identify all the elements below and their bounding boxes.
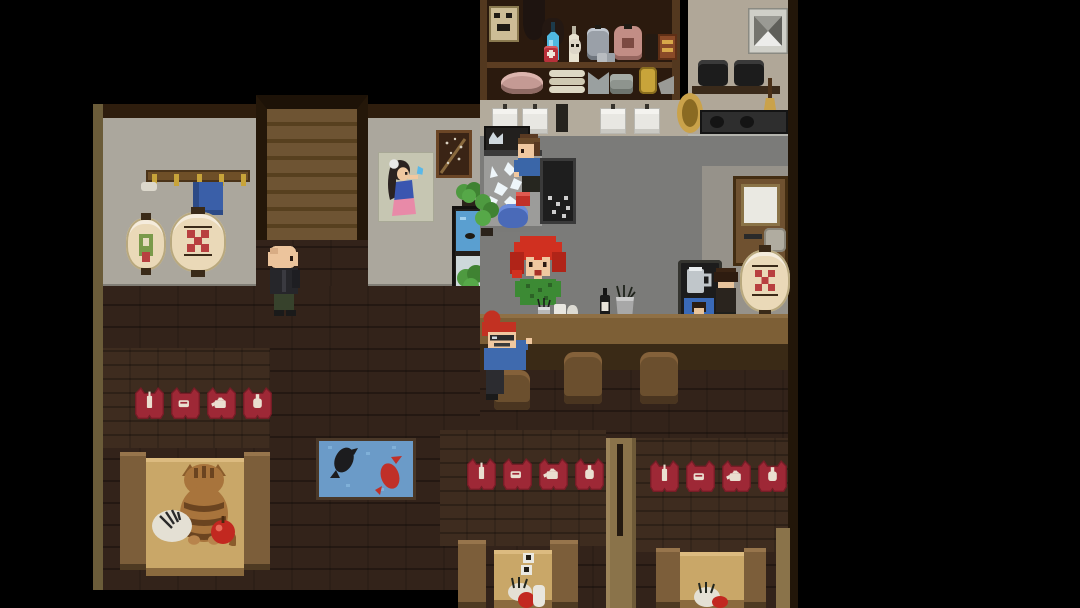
banner-cup (170, 386, 201, 423)
koi-rug (316, 438, 416, 500)
booth-pillar (606, 438, 636, 608)
banner-row-middle (466, 457, 605, 494)
bowl-pink (501, 72, 543, 94)
crate-red (658, 34, 677, 60)
jar-dark (645, 34, 658, 60)
lantern-floral (126, 218, 166, 270)
bar-stool-3[interactable] (640, 352, 678, 404)
back-bar-shelf (480, 0, 680, 106)
banner-bottle (649, 459, 680, 496)
banner-row-right (649, 459, 788, 496)
lamp-pole (617, 444, 623, 536)
jar-red (544, 46, 558, 63)
plate-stack-cream (549, 70, 585, 94)
left-booth-bench-left[interactable] (120, 452, 146, 570)
plate-stack-gray (610, 74, 633, 94)
hanging-sign (489, 6, 519, 42)
banner-jug (242, 386, 273, 423)
lantern-checkered (170, 212, 226, 272)
banner-bottle (466, 457, 497, 494)
character-seated-customer[interactable] (474, 310, 538, 402)
apple-left (208, 514, 238, 546)
banner-cup (502, 457, 533, 494)
door-handle (744, 234, 762, 239)
door-window (741, 184, 780, 226)
right-booth-bench-left[interactable] (656, 548, 680, 608)
menu-tags (521, 553, 537, 577)
banner-jug (757, 459, 788, 496)
bar-stool-2[interactable] (564, 352, 602, 404)
ice-bin-3 (600, 108, 626, 134)
cloths-gray (588, 72, 609, 94)
wall-vent (748, 8, 788, 54)
pot-black-1 (698, 60, 728, 86)
right-edge-pillar (776, 528, 790, 608)
banner-kettle (721, 459, 752, 496)
ice-bin-4 (634, 108, 660, 134)
dish-rack (540, 158, 576, 224)
mid-booth-bench-right[interactable] (550, 540, 578, 608)
banner-bottle (134, 386, 165, 423)
pot-black-2 (734, 60, 764, 86)
banner-cup (685, 459, 716, 496)
mid-booth-bench-left[interactable] (458, 540, 486, 608)
left-booth-bench-right[interactable] (244, 452, 270, 570)
jar-skull (569, 39, 581, 54)
banner-kettle (206, 386, 237, 423)
framed-picture (436, 130, 472, 178)
apple-right (712, 596, 728, 608)
prep-item-dark (556, 104, 568, 132)
jug-white-mid (533, 585, 545, 607)
pinup-poster (378, 152, 434, 222)
plant-pot-bar (474, 190, 500, 236)
staircase[interactable] (256, 95, 368, 245)
ornament-gold (639, 67, 657, 94)
sack-pink (614, 26, 642, 60)
right-booth-bench-right[interactable] (744, 548, 766, 608)
white-cloth (141, 182, 157, 191)
mug-picture (684, 265, 714, 297)
banner-jug (574, 457, 605, 494)
left-wall-edge (93, 104, 103, 590)
fishbone-dish-left (150, 502, 194, 544)
banner-row-left (134, 386, 273, 423)
lantern-door (740, 250, 790, 312)
scoop-gray (658, 76, 674, 94)
character-bald-customer[interactable] (260, 242, 308, 322)
game-viewport[interactable] (0, 0, 1080, 608)
banner-kettle (538, 457, 569, 494)
character-dishwasher[interactable] (514, 134, 544, 218)
